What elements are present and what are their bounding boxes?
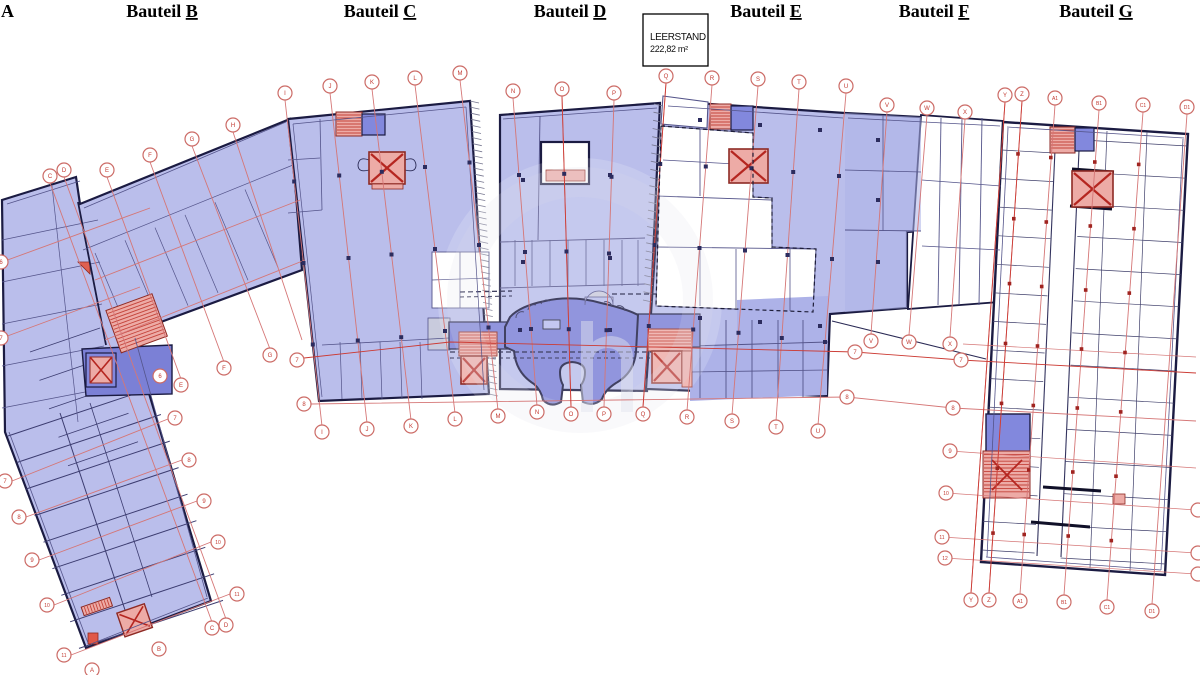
svg-text:J: J bbox=[366, 427, 369, 433]
svg-text:C: C bbox=[48, 174, 53, 180]
svg-text:Y: Y bbox=[1003, 93, 1007, 99]
svg-text:E: E bbox=[105, 168, 109, 174]
svg-text:K: K bbox=[370, 80, 374, 86]
svg-text:W: W bbox=[924, 106, 930, 112]
svg-text:K: K bbox=[409, 424, 413, 430]
svg-text:S: S bbox=[756, 77, 760, 83]
svg-text:C1: C1 bbox=[1140, 103, 1147, 109]
svg-text:W: W bbox=[906, 340, 912, 346]
svg-text:Y: Y bbox=[969, 598, 973, 604]
svg-text:Bauteil G: Bauteil G bbox=[1059, 1, 1133, 21]
svg-text:P: P bbox=[602, 412, 606, 418]
svg-text:B1: B1 bbox=[1061, 600, 1067, 606]
svg-text:A1: A1 bbox=[1017, 599, 1023, 605]
svg-text:Q: Q bbox=[641, 412, 646, 418]
svg-text:E: E bbox=[179, 383, 183, 389]
svg-text:10: 10 bbox=[44, 603, 50, 609]
svg-text:V: V bbox=[885, 103, 889, 109]
svg-text:10: 10 bbox=[943, 491, 949, 497]
svg-text:U: U bbox=[844, 84, 848, 90]
svg-text:O: O bbox=[560, 87, 565, 93]
svg-text:P: P bbox=[612, 91, 616, 97]
svg-text:D: D bbox=[224, 623, 229, 629]
svg-text:11: 11 bbox=[234, 592, 239, 598]
svg-text:X: X bbox=[963, 110, 967, 116]
svg-text:R: R bbox=[685, 415, 690, 421]
svg-text:D1: D1 bbox=[1184, 105, 1191, 111]
svg-text:Z: Z bbox=[1020, 92, 1024, 98]
svg-text:D1: D1 bbox=[1149, 609, 1156, 615]
svg-text:12: 12 bbox=[942, 556, 948, 562]
svg-text:A: A bbox=[1, 1, 14, 21]
svg-text:Bauteil B: Bauteil B bbox=[126, 1, 198, 21]
svg-text:11: 11 bbox=[61, 653, 66, 659]
svg-text:Z: Z bbox=[987, 598, 991, 604]
svg-text:11: 11 bbox=[939, 535, 944, 541]
svg-text:Bauteil E: Bauteil E bbox=[730, 1, 802, 21]
svg-text:F: F bbox=[148, 153, 152, 159]
svg-text:A: A bbox=[90, 668, 94, 674]
svg-text:C: C bbox=[210, 626, 215, 632]
svg-text:Bauteil F: Bauteil F bbox=[899, 1, 970, 21]
svg-text:R: R bbox=[710, 76, 715, 82]
svg-text:222,82 m²: 222,82 m² bbox=[650, 44, 688, 54]
svg-text:G: G bbox=[190, 137, 195, 143]
svg-text:M: M bbox=[458, 71, 463, 77]
svg-text:D: D bbox=[62, 168, 67, 174]
svg-text:O: O bbox=[569, 412, 574, 418]
svg-text:Q: Q bbox=[664, 74, 669, 80]
svg-text:H: H bbox=[231, 123, 235, 129]
svg-text:V: V bbox=[869, 339, 873, 345]
svg-text:Bauteil C: Bauteil C bbox=[344, 1, 417, 21]
svg-text:A1: A1 bbox=[1052, 96, 1058, 102]
svg-text:T: T bbox=[774, 425, 778, 431]
svg-text:N: N bbox=[535, 410, 539, 416]
svg-text:N: N bbox=[511, 89, 515, 95]
svg-text:M: M bbox=[496, 414, 501, 420]
svg-text:X: X bbox=[948, 342, 952, 348]
svg-text:S: S bbox=[730, 419, 734, 425]
svg-text:LEERSTAND: LEERSTAND bbox=[650, 32, 706, 43]
svg-text:J: J bbox=[329, 84, 332, 90]
svg-text:C1: C1 bbox=[1104, 605, 1111, 611]
svg-text:F: F bbox=[222, 366, 226, 372]
svg-text:10: 10 bbox=[215, 540, 221, 546]
svg-text:G: G bbox=[268, 353, 273, 359]
svg-text:T: T bbox=[797, 80, 801, 86]
svg-text:Bauteil D: Bauteil D bbox=[534, 1, 607, 21]
svg-text:B1: B1 bbox=[1096, 101, 1102, 107]
svg-text:U: U bbox=[816, 429, 820, 435]
svg-text:B: B bbox=[157, 647, 161, 653]
